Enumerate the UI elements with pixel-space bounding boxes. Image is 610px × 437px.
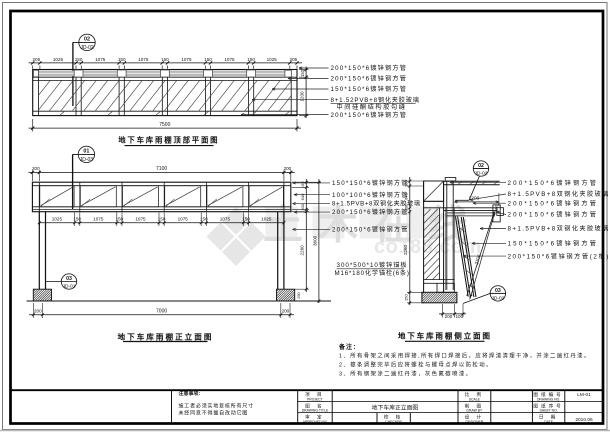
svg-text:200: 200	[282, 308, 290, 313]
svg-text:150: 150	[73, 217, 81, 222]
svg-text:注意事项:: 注意事项:	[179, 390, 201, 397]
svg-text:3600: 3600	[313, 235, 318, 246]
svg-text:1025: 1025	[53, 57, 64, 62]
svg-text:1075: 1075	[135, 217, 146, 222]
svg-text:150: 150	[403, 293, 408, 300]
svg-text:205: 205	[290, 57, 298, 62]
svg-text:APPROVED BY: APPROVED BY	[303, 420, 328, 424]
svg-text:150: 150	[242, 217, 250, 222]
svg-text:200*150*6镀锌钢方管: 200*150*6镀锌钢方管	[508, 179, 599, 187]
svg-text:JD-03: JD-03	[80, 157, 94, 163]
svg-text:200*150*6镀锌钢方管: 200*150*6镀锌钢方管	[332, 208, 409, 216]
svg-text:150: 150	[75, 57, 83, 62]
svg-text:1075: 1075	[178, 217, 189, 222]
svg-text:7500: 7500	[159, 122, 170, 128]
svg-text:205: 205	[32, 57, 40, 62]
svg-text:100*100*6镀锌钢方管: 100*100*6镀锌钢方管	[332, 191, 409, 199]
svg-text:8+1.5PVB+8双钢化夹胶玻璃: 8+1.5PVB+8双钢化夹胶玻璃	[508, 190, 610, 198]
svg-text:1075: 1075	[181, 57, 192, 62]
svg-text:250: 250	[297, 292, 301, 298]
svg-text:地下车库雨棚顶部平面图: 地下车库雨棚顶部平面图	[118, 136, 219, 145]
svg-text:SHEET NO.: SHEET NO.	[539, 409, 557, 413]
svg-text:150: 150	[200, 217, 208, 222]
svg-text:1、所有骨架之间采用焊接,所有焊口焊接后，应将焊渣清理干净，: 1、所有骨架之间采用焊接,所有焊口焊接后，应将焊渣清理干净，并涂二遍红丹漆。	[339, 352, 591, 360]
svg-text:200: 200	[445, 314, 453, 319]
svg-text:02: 02	[84, 37, 90, 43]
svg-text:200*150*6镀锌钢方管: 200*150*6镀锌钢方管	[332, 226, 409, 234]
svg-text:150*150*6镀锌钢方管: 150*150*6镀锌钢方管	[332, 179, 409, 187]
svg-text:7000: 7000	[156, 308, 167, 314]
svg-text:JD-02: JD-02	[492, 296, 505, 302]
svg-text:SCALE: SCALE	[469, 397, 481, 401]
svg-text:DRAWING TITLE: DRAWING TITLE	[302, 409, 329, 413]
svg-text:1025: 1025	[261, 217, 272, 222]
svg-text:地下车库雨棚正立面图: 地下车库雨棚正立面图	[118, 331, 214, 341]
svg-text:1075: 1075	[224, 57, 235, 62]
svg-text:1075: 1075	[138, 57, 149, 62]
svg-text:M16*180化学锚栓(6条): M16*180化学锚栓(6条)	[335, 269, 410, 277]
svg-text:8+1.52PVB+8钢化夹胶玻璃: 8+1.52PVB+8钢化夹胶玻璃	[331, 96, 420, 104]
svg-text:150: 150	[495, 205, 499, 211]
svg-text:640: 640	[403, 192, 408, 199]
svg-text:2260: 2260	[403, 244, 408, 255]
svg-text:中间硅酮结构胶勾缝: 中间硅酮结构胶勾缝	[337, 103, 407, 111]
svg-text:150: 150	[247, 57, 255, 62]
svg-text:03: 03	[495, 288, 501, 294]
svg-text:JD-01: JD-01	[63, 284, 76, 290]
svg-text:地下车库雨棚侧立面图: 地下车库雨棚侧立面图	[398, 330, 492, 340]
svg-text:01: 01	[83, 149, 89, 155]
svg-text:施工者必须实地复核所有尺寸: 施工者必须实地复核所有尺寸	[179, 403, 254, 410]
svg-text:8+1.5PVB+8双钢化夹胶玻璃: 8+1.5PVB+8双钢化夹胶玻璃	[508, 225, 610, 233]
svg-text:150*150*6镀锌钢方管: 150*150*6镀锌钢方管	[508, 240, 599, 248]
svg-text:150: 150	[300, 181, 305, 188]
svg-text:150: 150	[403, 180, 408, 187]
svg-text:1075: 1075	[93, 217, 104, 222]
svg-text:200*150*6镀锌钢方管: 200*150*6镀锌钢方管	[331, 64, 408, 72]
svg-text:200*150*6镀锌钢方管: 200*150*6镀锌钢方管	[508, 211, 599, 219]
svg-text:PROJECT: PROJECT	[307, 397, 323, 401]
svg-text:150: 150	[161, 57, 169, 62]
svg-text:备注：: 备注：	[338, 343, 360, 351]
svg-text:地下车库正立面图: 地下车库正立面图	[372, 403, 419, 411]
svg-text:100: 100	[455, 314, 463, 319]
svg-text:1075: 1075	[95, 57, 106, 62]
svg-text:JD-02: JD-02	[475, 171, 488, 177]
svg-text:150: 150	[300, 69, 305, 77]
svg-text:200: 200	[34, 308, 42, 313]
svg-text:200: 200	[32, 166, 40, 171]
svg-text:DESIGNER: DESIGNER	[466, 420, 484, 424]
svg-text:2、檩条调整完毕后应将螺栓与螺母点焊以防松动。: 2、檩条调整完毕后应将螺栓与螺母点焊以防松动。	[339, 361, 493, 369]
svg-text:640: 640	[300, 193, 305, 200]
svg-text:03: 03	[66, 276, 72, 282]
svg-text:1025: 1025	[52, 217, 63, 222]
svg-text:02: 02	[478, 163, 484, 169]
svg-text:1075: 1075	[220, 217, 231, 222]
svg-text:200*150*6镀锌钢方管: 200*150*6镀锌钢方管	[331, 75, 408, 83]
svg-text:150: 150	[204, 57, 212, 62]
svg-text:200*150*6镀锌钢方管(2根): 200*150*6镀锌钢方管(2根)	[508, 252, 610, 260]
svg-text:200*150*6镀锌钢方管: 200*150*6镀锌钢方管	[508, 199, 599, 207]
svg-text:7100: 7100	[156, 166, 167, 172]
svg-text:150*150*6镀锌钢方管: 150*150*6镀锌钢方管	[331, 85, 408, 93]
svg-text:2010.06: 2010.06	[575, 417, 593, 423]
svg-text:DATE: DATE	[544, 420, 554, 424]
svg-text:300: 300	[403, 203, 408, 210]
svg-text:JD-02: JD-02	[80, 45, 94, 51]
svg-text:3、所有钢架涂二遍红丹漆，灰色氟碳喷漆。: 3、所有钢架涂二遍红丹漆，灰色氟碳喷漆。	[339, 370, 472, 378]
svg-text:200: 200	[284, 166, 292, 171]
svg-text:150: 150	[118, 57, 126, 62]
svg-text:DRAWING NO.: DRAWING NO.	[537, 397, 560, 401]
svg-text:LM-01: LM-01	[577, 392, 591, 398]
svg-text:150: 150	[158, 217, 166, 222]
svg-text:CHECKER: CHECKER	[385, 420, 402, 424]
svg-text:200*150*6镀锌钢方管: 200*150*6镀锌钢方管	[331, 111, 408, 119]
svg-text:1025: 1025	[267, 57, 278, 62]
svg-text:300*500*10镀锌锚板: 300*500*10镀锌锚板	[337, 261, 408, 269]
svg-text:2260: 2260	[300, 245, 305, 256]
svg-text:300: 300	[300, 203, 305, 210]
svg-text:未经同意不得擅自改动它图: 未经同意不得擅自改动它图	[179, 410, 249, 417]
svg-text:DRAW BY: DRAW BY	[467, 409, 483, 413]
svg-text:150: 150	[116, 217, 124, 222]
